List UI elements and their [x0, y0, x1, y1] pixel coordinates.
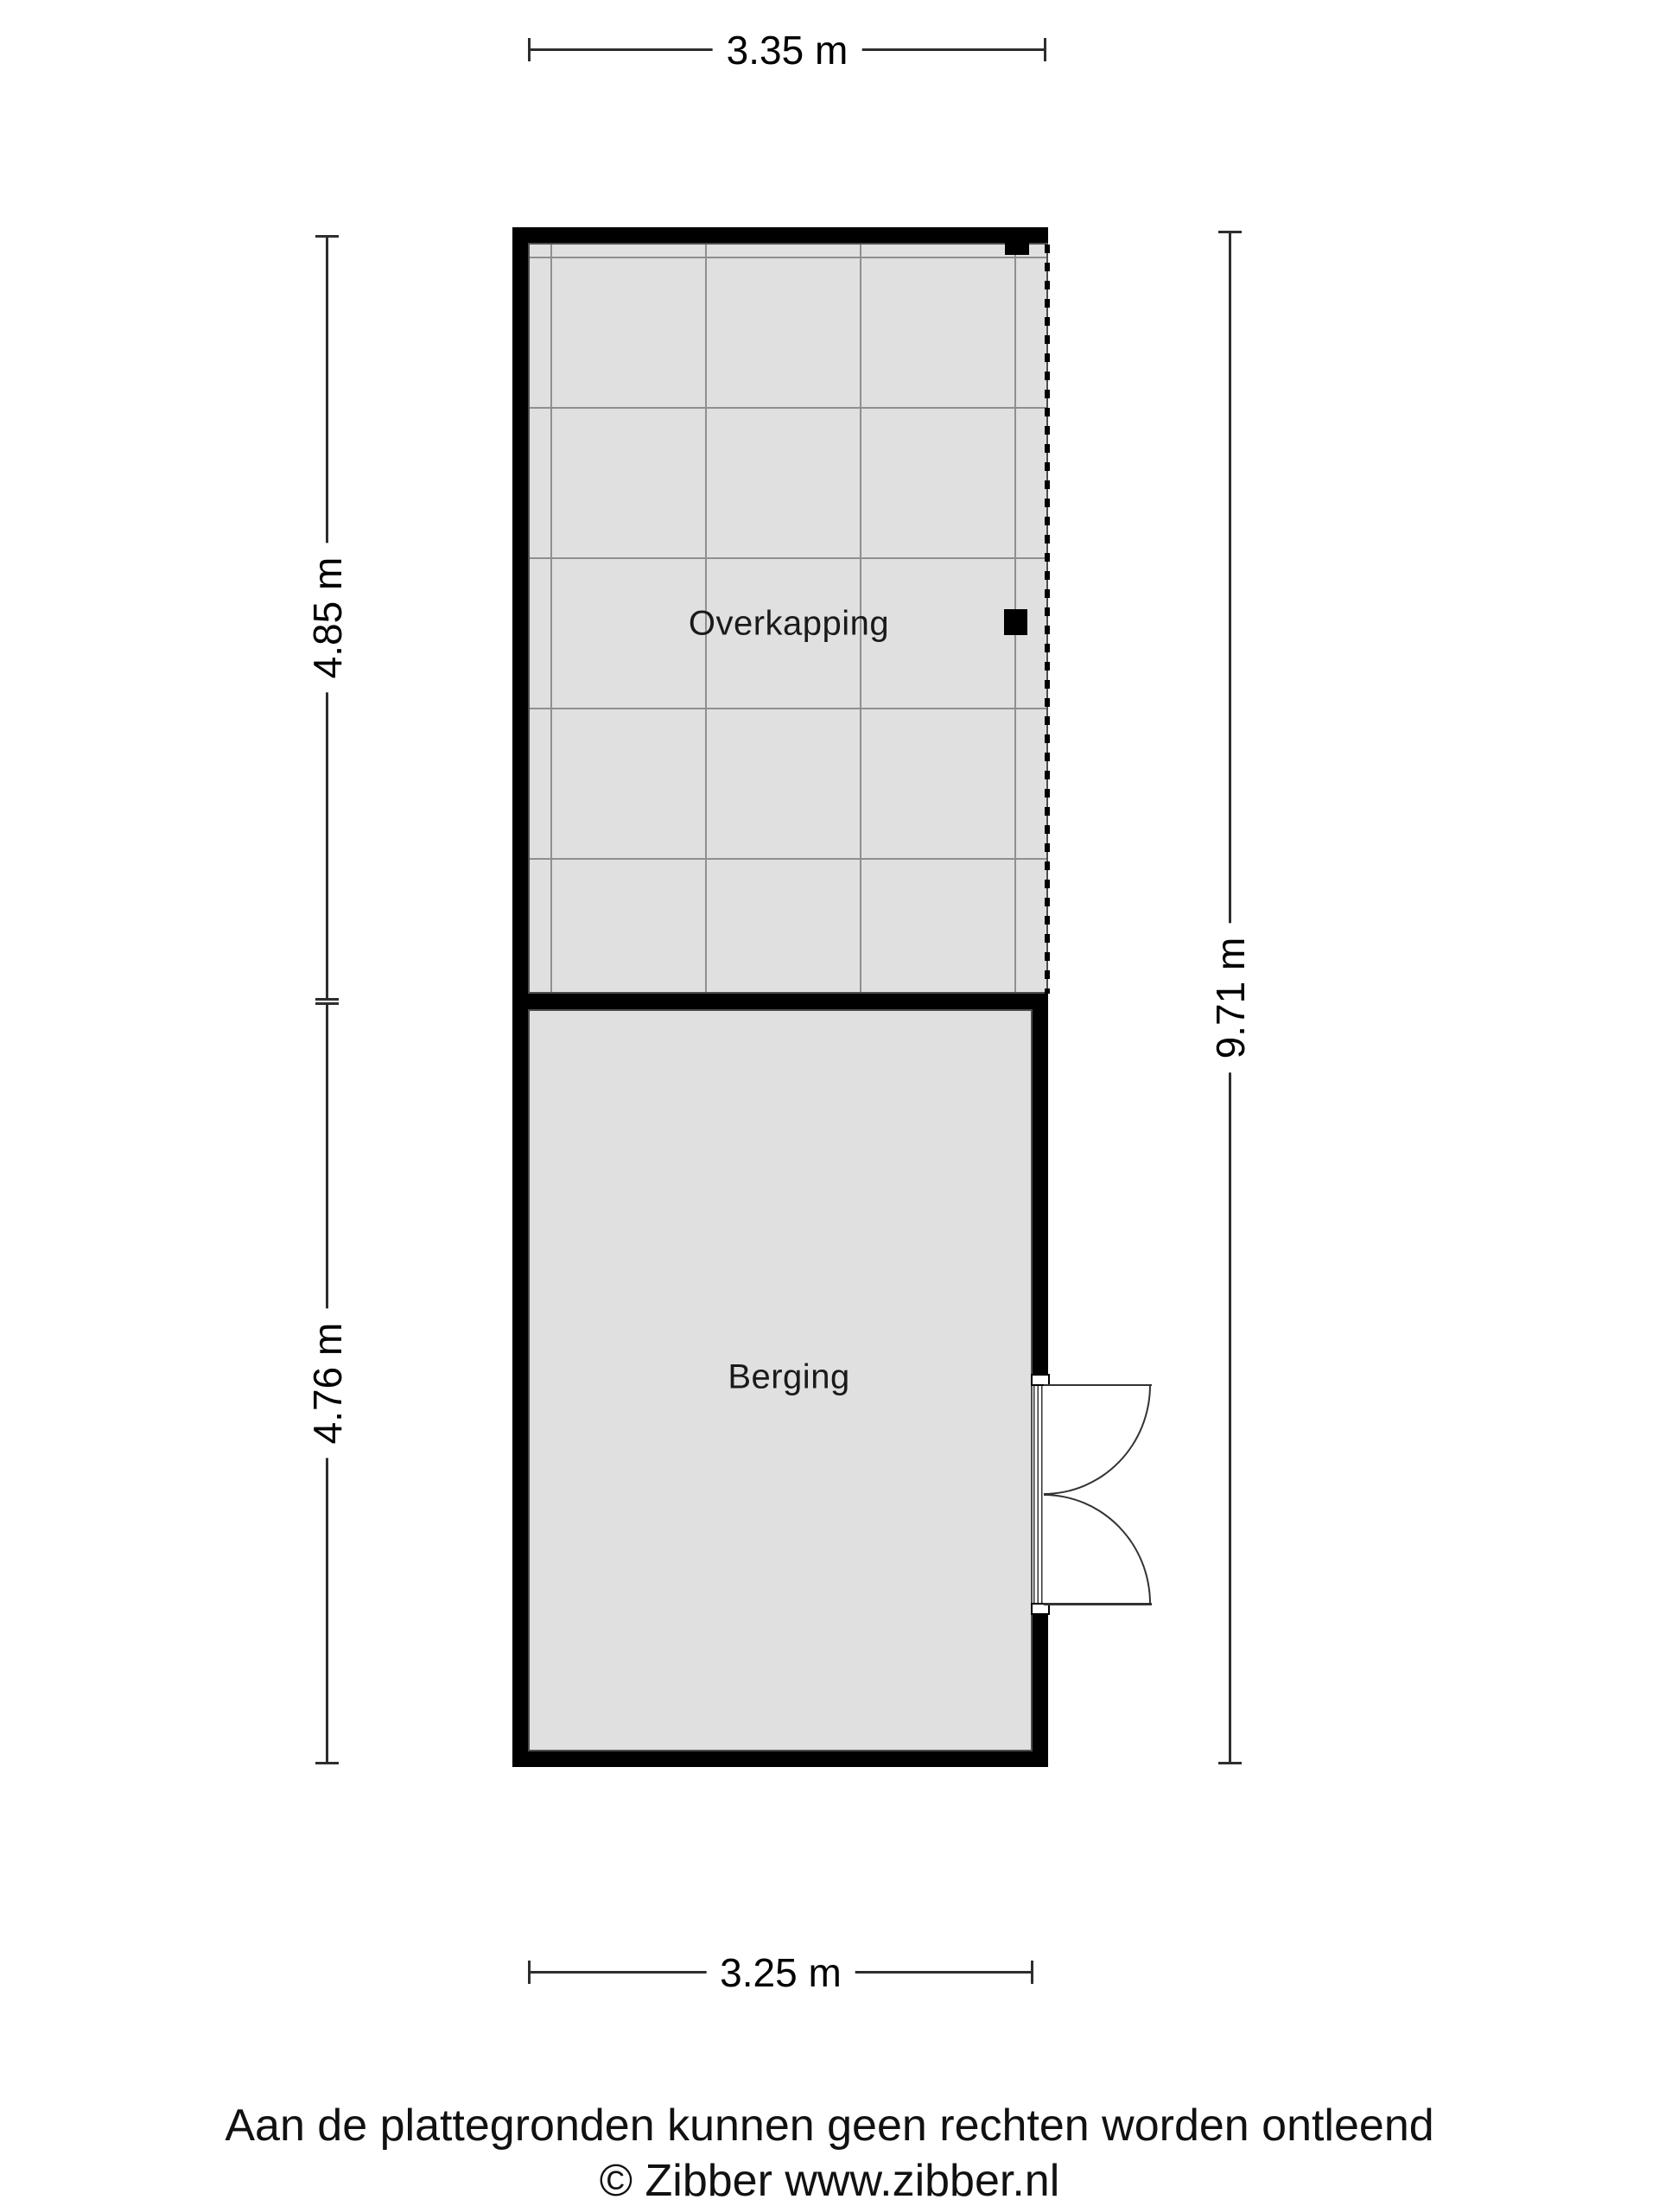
floor-plan-canvas: Overkapping Berging 3.35 m 4.85 m 4.76 m…: [0, 0, 1659, 2212]
dimension-left-upper-label: 4.85 m: [302, 543, 353, 693]
open-side-dashed-line: [1045, 245, 1050, 994]
dimension-right-label: 9.71 m: [1205, 923, 1255, 1072]
footer-disclaimer: Aan de plattegronden kunnen geen rechten…: [225, 2100, 1433, 2152]
dimension-left-lower: 4.76 m: [315, 1002, 339, 1764]
room-overkapping-label: Overkapping: [689, 605, 889, 644]
dimension-left-upper: 4.85 m: [315, 235, 339, 1001]
wall-bottom: [512, 1751, 1048, 1767]
wall-right-lower: [1033, 1615, 1048, 1767]
door-swing-arc-top: [1044, 1385, 1151, 1495]
footer-copyright: © Zibber www.zibber.nl: [600, 2155, 1060, 2207]
dimension-bottom-label: 3.25 m: [706, 1948, 855, 1998]
dimension-bottom: 3.25 m: [528, 1961, 1033, 1984]
dimension-left-lower-label: 4.76 m: [302, 1309, 353, 1459]
support-post-middle: [1004, 609, 1027, 635]
door-swing-arc-bottom: [1044, 1494, 1151, 1604]
dimension-right: 9.71 m: [1218, 231, 1242, 1764]
dimension-top: 3.35 m: [528, 38, 1046, 61]
room-berging-label: Berging: [728, 1358, 849, 1397]
dimension-top-label: 3.35 m: [713, 25, 862, 75]
wall-right-upper: [1033, 994, 1048, 1374]
wall-middle: [512, 994, 1047, 1009]
wall-top: [512, 227, 1048, 243]
support-post-top: [1005, 240, 1029, 255]
